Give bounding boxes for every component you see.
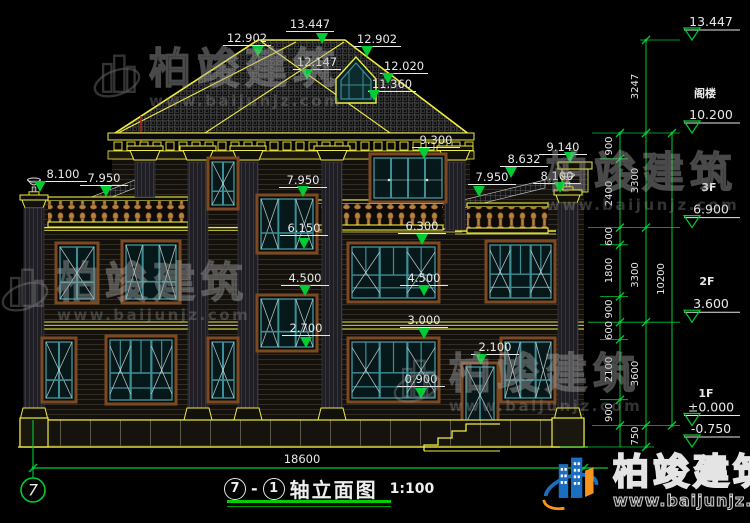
drawing-scale: 1:100 bbox=[390, 481, 435, 497]
floor-label: 2F bbox=[699, 275, 714, 288]
dim-text: 11.360 bbox=[372, 77, 412, 91]
title-underline-thin bbox=[227, 506, 391, 507]
window bbox=[370, 154, 446, 202]
window bbox=[208, 338, 238, 402]
dim-text: 6.300 bbox=[406, 219, 439, 233]
window bbox=[56, 243, 98, 303]
chain-dim-text: 1800 bbox=[604, 258, 615, 283]
axis-dash: - bbox=[251, 479, 258, 498]
dim-text: 2.100 bbox=[479, 340, 512, 354]
overall-width-dim: 18600 bbox=[284, 452, 321, 466]
elevation-drawing-canvas: 13.44712.90212.90212.14712.02011.3609.30… bbox=[0, 0, 750, 523]
chain-dim-text: 2100 bbox=[604, 357, 615, 382]
chain-dim-text: 600 bbox=[604, 227, 615, 246]
chain-dim-text: 600 bbox=[604, 321, 615, 340]
axis-start-bubble: 7 bbox=[224, 478, 246, 500]
chain-dim-text: 2400 bbox=[604, 181, 615, 206]
company-logo: 柏竣建筑 www.baijunjz.com bbox=[538, 451, 750, 513]
entry-door bbox=[462, 363, 498, 427]
dim-text: 12.147 bbox=[297, 55, 337, 69]
title-underline-thick bbox=[227, 500, 391, 503]
dim-text: 7.950 bbox=[88, 171, 121, 185]
level-value: 10.200 bbox=[689, 107, 733, 122]
level-value: -0.750 bbox=[691, 421, 731, 436]
dim-text: 4.500 bbox=[408, 271, 441, 285]
level-mark: 10.200 bbox=[684, 107, 740, 133]
chain-dim-text: 900 bbox=[604, 136, 615, 155]
dim-text: 7.950 bbox=[287, 173, 320, 187]
chain-dim-text: 3300 bbox=[630, 262, 641, 287]
dim-text: 8.100 bbox=[541, 169, 574, 183]
corner-pier bbox=[554, 173, 582, 420]
balustrade bbox=[467, 203, 548, 233]
level-mark: 13.447 bbox=[684, 14, 740, 40]
window bbox=[122, 241, 180, 303]
floor-label: 阁楼 bbox=[694, 86, 716, 100]
chain-dim-text: 900 bbox=[604, 403, 615, 422]
level-value: 6.900 bbox=[693, 202, 729, 217]
chain-dim-text: 900 bbox=[604, 299, 615, 318]
dim-text: 13.447 bbox=[290, 17, 330, 31]
dim-text: 6.150 bbox=[288, 221, 321, 235]
chain-dim-text: 3300 bbox=[630, 168, 641, 193]
balustrade bbox=[48, 197, 188, 227]
drawing-title: 7 - 1 轴立面图 1:100 bbox=[224, 474, 434, 503]
company-logo-icon bbox=[538, 451, 604, 513]
dim-text: 3.000 bbox=[408, 313, 441, 327]
chain-dim-text: 750 bbox=[630, 426, 641, 445]
dim-text: 9.140 bbox=[547, 140, 580, 154]
company-url: www.baijunjz.com bbox=[613, 491, 750, 510]
plinth-base bbox=[18, 418, 588, 451]
level-value: 13.447 bbox=[689, 14, 733, 29]
chain-dim-text: 3600 bbox=[630, 361, 641, 386]
chain-dim-text: 3247 bbox=[630, 74, 641, 99]
dim-text: 8.632 bbox=[508, 152, 541, 166]
level-mark: 6.900 bbox=[684, 202, 740, 228]
elevation-dim-label: 9.140 bbox=[539, 140, 587, 163]
elevation-dim-label: 8.100 bbox=[34, 167, 87, 192]
cad-elevation-screenshot: 13.44712.90212.90212.14712.02011.3609.30… bbox=[0, 0, 750, 523]
level-value: ±0.000 bbox=[688, 400, 734, 415]
company-name: 柏竣建筑 bbox=[613, 454, 750, 492]
window bbox=[486, 241, 555, 302]
drawing-title-text: 轴立面图 bbox=[290, 474, 378, 503]
window bbox=[208, 158, 238, 209]
dim-text: 9.300 bbox=[420, 133, 453, 147]
dim-text: 8.100 bbox=[47, 167, 80, 181]
axis-end-bubble: 1 bbox=[263, 478, 285, 500]
dim-text: 12.902 bbox=[357, 32, 397, 46]
right-dimension-panel: 9002400600180090060021009003247330033003… bbox=[560, 14, 740, 451]
dim-text: 12.020 bbox=[384, 59, 424, 73]
axis-bubble-number: 7 bbox=[28, 481, 39, 500]
dim-text: 4.500 bbox=[289, 271, 322, 285]
level-mark: 3.600 bbox=[684, 296, 740, 322]
dim-text: 0.900 bbox=[405, 372, 438, 386]
level-mark: -0.750 bbox=[684, 421, 740, 447]
floor-label: 1F bbox=[698, 387, 713, 400]
dim-text: 7.950 bbox=[476, 170, 509, 184]
window bbox=[42, 338, 76, 402]
window bbox=[348, 338, 439, 402]
dim-text: 2.700 bbox=[290, 321, 323, 335]
chain-dim-text: 10200 bbox=[656, 263, 667, 295]
dim-text: 12.902 bbox=[227, 31, 267, 45]
window bbox=[106, 336, 176, 404]
floor-label: 3F bbox=[701, 181, 716, 194]
level-value: 3.600 bbox=[693, 296, 729, 311]
